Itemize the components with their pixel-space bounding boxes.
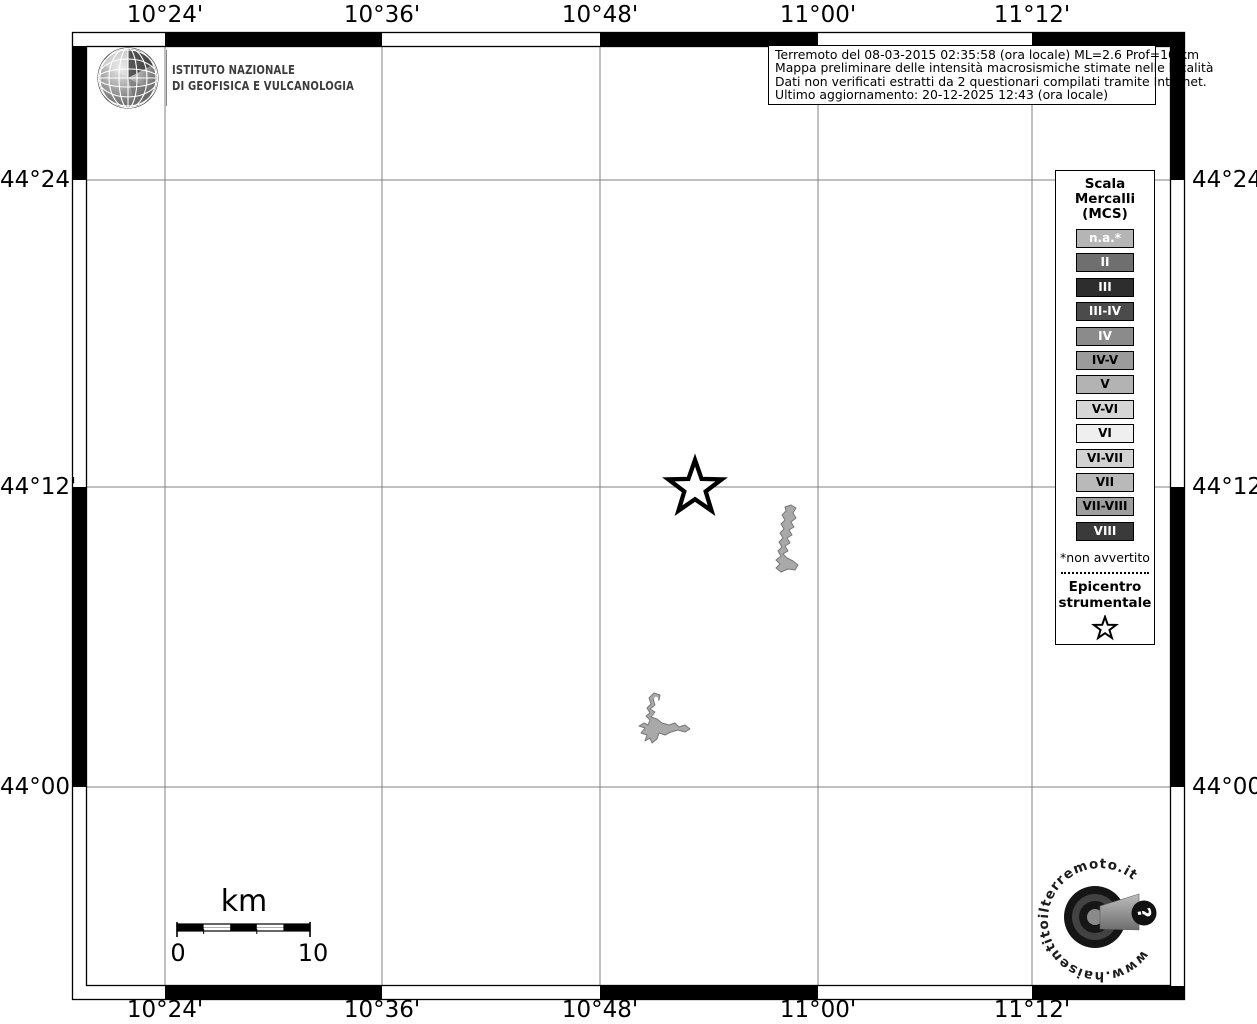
graticule-gridlines	[86, 46, 1171, 986]
legend-items: n.a.* II III III-IV IV IV-V V V-VI VI VI…	[1056, 229, 1154, 541]
mcs-scale-box: V-VI	[1076, 400, 1134, 419]
scale-bar	[177, 922, 310, 937]
axis-label-left-1: 44°24'	[0, 167, 64, 193]
legend-title-line2: Mercalli	[1056, 192, 1154, 207]
axis-label-top-4: 11°00'	[753, 2, 883, 28]
event-info-box: Terremoto del 08-03-2015 02:35:58 (ora l…	[768, 45, 1156, 105]
axis-label-top-2: 10°36'	[317, 2, 447, 28]
mcs-scale-box: IV	[1076, 327, 1134, 346]
mcs-intensity-legend: Scala Mercalli (MCS) n.a.* II III III-IV…	[1055, 170, 1155, 645]
axis-label-right-1: 44°24'	[1192, 167, 1257, 193]
legend-epicenter-label: Epicentro strumentale	[1056, 579, 1154, 611]
mcs-scale-box: VII	[1076, 473, 1134, 492]
ingv-logo-separator	[166, 50, 167, 106]
mcs-scale-box: V	[1076, 375, 1134, 394]
legend-epicenter-line1: Epicentro	[1056, 579, 1154, 595]
legend-dotted-separator	[1061, 572, 1149, 574]
mcs-scale-box: IV-V	[1076, 351, 1134, 370]
legend-title: Scala Mercalli (MCS)	[1056, 177, 1154, 222]
mcs-scale-box: VI-VII	[1076, 449, 1134, 468]
mcs-scale-box: III-IV	[1076, 302, 1134, 321]
ingv-org-name: ISTITUTO NAZIONALE DI GEOFISICA E VULCAN…	[172, 62, 354, 93]
axis-label-bottom-5: 11°12'	[967, 997, 1097, 1023]
axis-label-bottom-3: 10°48'	[535, 997, 665, 1023]
mcs-scale-box: VIII	[1076, 522, 1134, 541]
legend-epicenter-symbol	[1056, 615, 1154, 645]
axis-label-right-2: 44°12'	[1192, 474, 1257, 500]
legend-footnote: *non avvertito	[1056, 550, 1154, 565]
legend-title-line3: (MCS)	[1056, 207, 1154, 222]
lake-polygons	[639, 505, 798, 743]
mcs-scale-box: VI	[1076, 424, 1134, 443]
event-info-line2: Mappa preliminare delle intensità macros…	[775, 61, 1149, 74]
scale-bar-end-label: 10	[291, 939, 335, 967]
axis-label-top-1: 10°24'	[100, 2, 230, 28]
axis-label-right-3: 44°00'	[1192, 774, 1257, 800]
axis-label-left-2: 44°12'	[0, 474, 64, 500]
axis-label-bottom-1: 10°24'	[100, 997, 230, 1023]
axis-label-top-5: 11°12'	[967, 2, 1097, 28]
lake-polygon-north	[776, 505, 798, 572]
scale-bar-unit-label: km	[194, 884, 294, 919]
ingv-globe-logo	[96, 46, 160, 110]
event-info-line3: Dati non verificati estratti da 2 questi…	[775, 75, 1149, 88]
mcs-scale-box: III	[1076, 278, 1134, 297]
lake-polygon-south	[639, 693, 690, 743]
mcs-scale-box: II	[1076, 253, 1134, 272]
axis-label-bottom-4: 11°00'	[753, 997, 883, 1023]
ingv-org-line2: DI GEOFISICA E VULCANOLOGIA	[172, 78, 354, 94]
map-frame-fancy-border	[72, 32, 1185, 1000]
legend-title-line1: Scala	[1056, 177, 1154, 192]
star-outline-icon	[1091, 615, 1119, 641]
mcs-scale-box: VII-VIII	[1076, 497, 1134, 516]
scale-bar-start-label: 0	[158, 939, 198, 967]
event-info-line4: Ultimo aggiornamento: 20-12-2025 12:43 (…	[775, 88, 1149, 101]
event-info-line1: Terremoto del 08-03-2015 02:35:58 (ora l…	[775, 48, 1149, 61]
ingv-org-line1: ISTITUTO NAZIONALE	[172, 62, 354, 78]
mcs-scale-box: n.a.*	[1076, 229, 1134, 248]
haisentitoilterremoto-logo: ? www.haisentitoilterremoto.it	[1036, 856, 1157, 984]
axis-label-bottom-2: 10°36'	[317, 997, 447, 1023]
epicenter-star-icon	[668, 460, 721, 511]
legend-epicenter-line2: strumentale	[1056, 595, 1154, 611]
map-frame-lines	[73, 33, 1185, 1000]
axis-label-left-3: 44°00'	[0, 774, 64, 800]
axis-label-top-3: 10°48'	[535, 2, 665, 28]
